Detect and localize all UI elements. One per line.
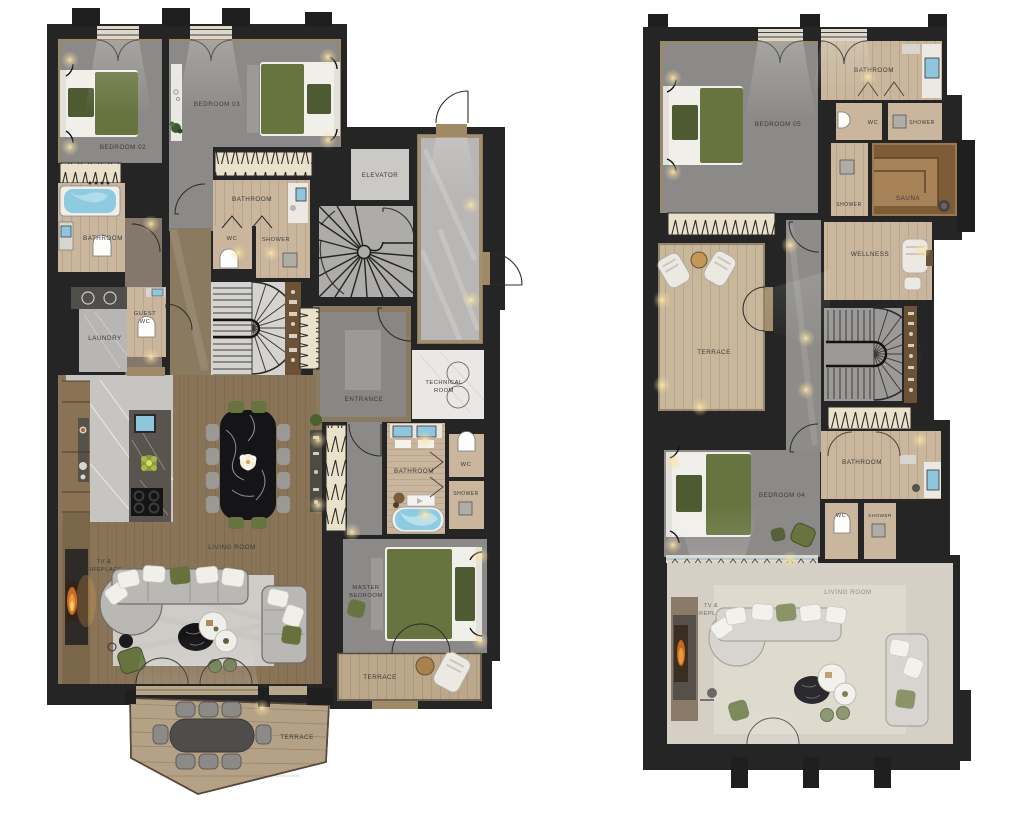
svg-text:ENTRANCE: ENTRANCE xyxy=(345,396,384,403)
svg-text:SHOWER: SHOWER xyxy=(909,120,935,126)
svg-text:TECHNICAL: TECHNICAL xyxy=(425,380,463,386)
svg-text:SHOWER: SHOWER xyxy=(262,237,290,243)
svg-text:LAUNDRY: LAUNDRY xyxy=(88,335,122,342)
svg-text:ROOM: ROOM xyxy=(434,388,454,394)
svg-text:MASTER: MASTER xyxy=(352,585,379,591)
svg-text:TERRACE: TERRACE xyxy=(363,674,397,681)
svg-text:SAUNA: SAUNA xyxy=(896,195,920,202)
svg-text:WC: WC xyxy=(461,462,472,468)
svg-text:TERRACE: TERRACE xyxy=(697,349,731,356)
svg-text:BEDROOM: BEDROOM xyxy=(349,593,382,599)
svg-text:WC: WC xyxy=(140,319,151,325)
svg-text:WELLNESS: WELLNESS xyxy=(851,251,889,258)
svg-text:BATHROOM: BATHROOM xyxy=(83,235,123,242)
svg-text:TV &: TV & xyxy=(704,603,718,609)
svg-text:SHOWER: SHOWER xyxy=(868,513,892,518)
svg-text:BATHROOM: BATHROOM xyxy=(842,459,882,466)
svg-text:SHOWER: SHOWER xyxy=(836,202,862,208)
svg-text:WC: WC xyxy=(227,236,238,242)
svg-text:BEDROOM 05: BEDROOM 05 xyxy=(755,121,801,128)
svg-text:WC: WC xyxy=(868,120,879,126)
svg-text:TERRACE: TERRACE xyxy=(280,734,314,741)
svg-text:LIVING ROOM: LIVING ROOM xyxy=(824,589,871,596)
svg-text:GUEST: GUEST xyxy=(134,311,156,317)
svg-text:BEDROOM 02: BEDROOM 02 xyxy=(100,144,146,151)
svg-text:BEDROOM 04: BEDROOM 04 xyxy=(759,492,805,499)
svg-text:BATHROOM: BATHROOM xyxy=(232,196,272,203)
svg-text:ELEVATOR: ELEVATOR xyxy=(362,172,399,179)
svg-text:LIVING ROOM: LIVING ROOM xyxy=(208,544,255,551)
svg-text:BATHROOM: BATHROOM xyxy=(394,468,434,475)
svg-text:SHOWER: SHOWER xyxy=(453,491,479,497)
svg-text:WC: WC xyxy=(836,513,846,519)
svg-text:TV &: TV & xyxy=(97,559,112,565)
